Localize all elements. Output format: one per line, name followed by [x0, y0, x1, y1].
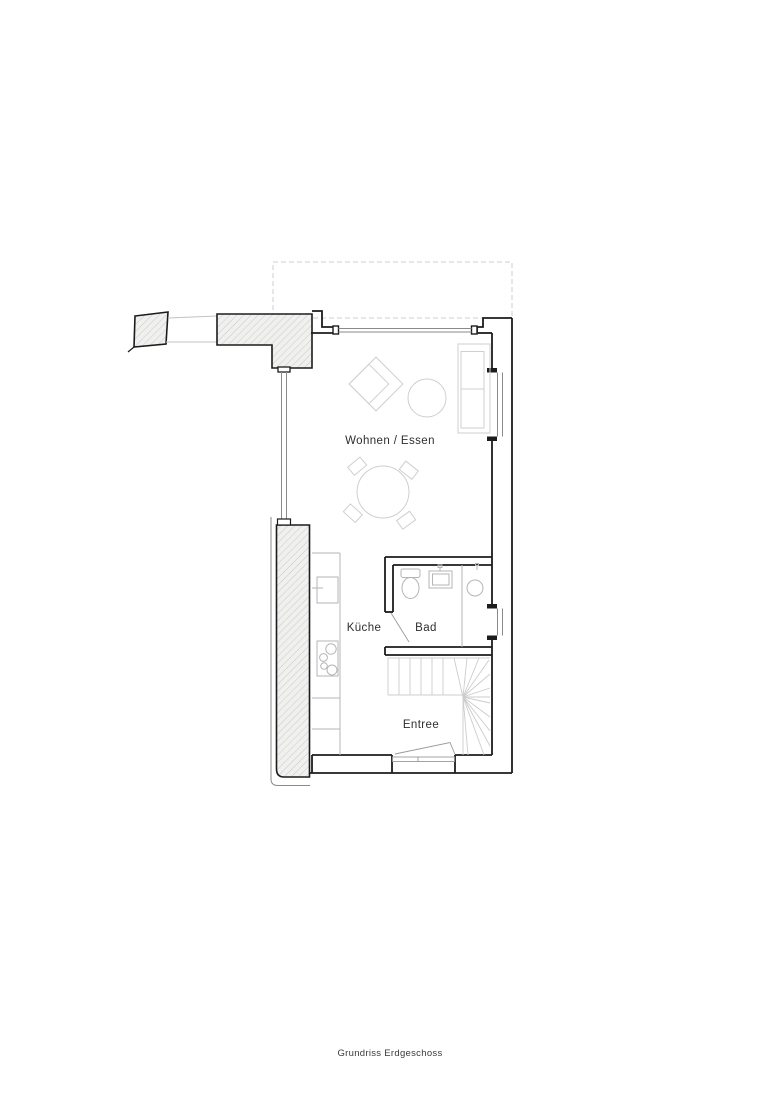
- washbasin-icon: [429, 565, 452, 588]
- floor-plan-page: Wohnen / Essen Küche Bad Entree Grundris…: [0, 0, 780, 1103]
- side-table-icon: [408, 379, 446, 417]
- left-glazing-band: [278, 367, 291, 525]
- new-walls: [309, 311, 512, 773]
- existing-wall-opening-lines: [166, 316, 217, 342]
- kitchen-counter: [312, 553, 340, 755]
- right-bath-window: [487, 604, 503, 640]
- dining-table-icon: [343, 457, 418, 529]
- floor-plan-svg: Wohnen / Essen Küche Bad Entree Grundris…: [0, 0, 780, 1103]
- armchair-icon: [349, 357, 403, 411]
- room-label-kitchen: Küche: [347, 622, 382, 634]
- dining-chair-icon: [343, 504, 362, 523]
- dining-chair-icon: [348, 457, 367, 475]
- toilet-icon: [401, 569, 420, 599]
- dining-chair-icon: [397, 511, 416, 529]
- entrance-door: [393, 743, 456, 762]
- sofa-icon: [458, 344, 490, 433]
- winder-staircase: [388, 658, 490, 755]
- right-living-window: [487, 368, 503, 441]
- top-window-band: [333, 326, 477, 334]
- upper-storey-dashed-outline: [273, 262, 512, 318]
- existing-wall-fragment-left: [128, 312, 168, 352]
- room-label-living-dining: Wohnen / Essen: [345, 435, 435, 447]
- cooktop-icon: [317, 641, 338, 676]
- shower-icon: [467, 564, 483, 597]
- bathroom-fixtures: [401, 564, 483, 648]
- plan-caption: Grundriss Erdgeschoss: [337, 1048, 442, 1059]
- room-label-entry: Entree: [403, 719, 439, 731]
- bathroom-door: [391, 613, 409, 642]
- existing-wall-left-long: [271, 517, 310, 786]
- existing-wall-top: [217, 314, 312, 368]
- kitchen-sink-icon: [312, 577, 338, 603]
- room-label-bath: Bad: [415, 622, 437, 634]
- dining-chair-icon: [399, 461, 418, 479]
